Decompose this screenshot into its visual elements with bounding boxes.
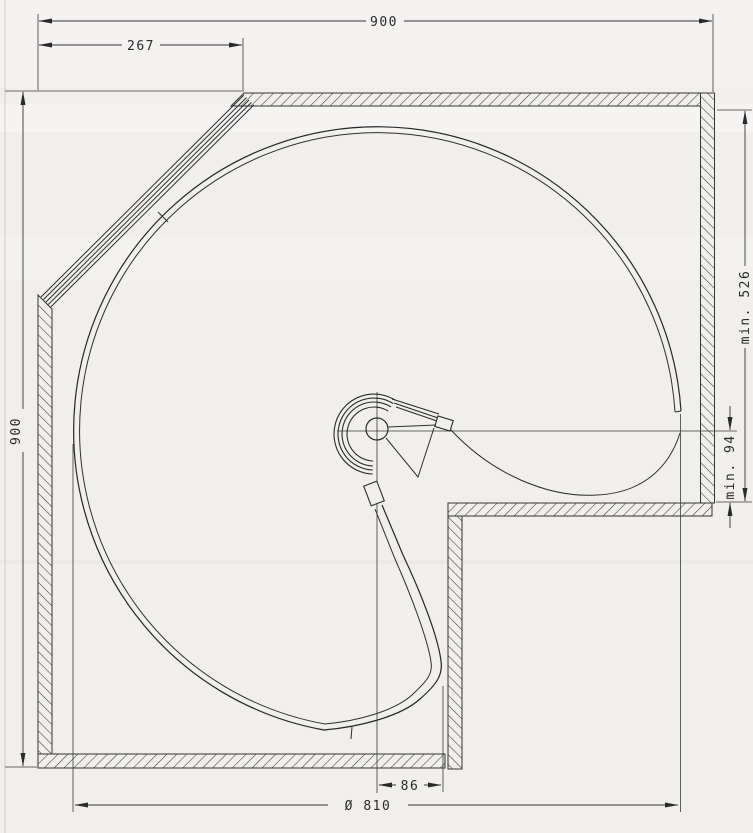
wall-top <box>231 93 714 106</box>
wall-left <box>38 295 52 768</box>
dim-left-height-label: 900 <box>9 417 24 445</box>
dim-left-offset-label: 267 <box>127 39 155 54</box>
wall-right <box>701 93 715 503</box>
wall-inner-horizontal <box>448 503 712 516</box>
paper-background <box>0 0 753 833</box>
dim-min-depth-right-label: min. 526 <box>738 270 753 345</box>
dim-pivot-to-edge-label: 86 <box>401 779 420 794</box>
scanned-technical-drawing: 900 267 900 min. 526 min. 94 86 <box>0 0 753 833</box>
dim-top-width-label: 900 <box>370 15 398 30</box>
wall-inner-vertical <box>448 503 462 769</box>
dim-min-clearance-right-label: min. 94 <box>723 434 738 499</box>
wall-bottom <box>38 754 445 768</box>
dim-shelf-diameter-label: Ø 810 <box>345 799 392 814</box>
cad-plan-corner-carousel: 900 267 900 min. 526 min. 94 86 <box>0 0 753 833</box>
